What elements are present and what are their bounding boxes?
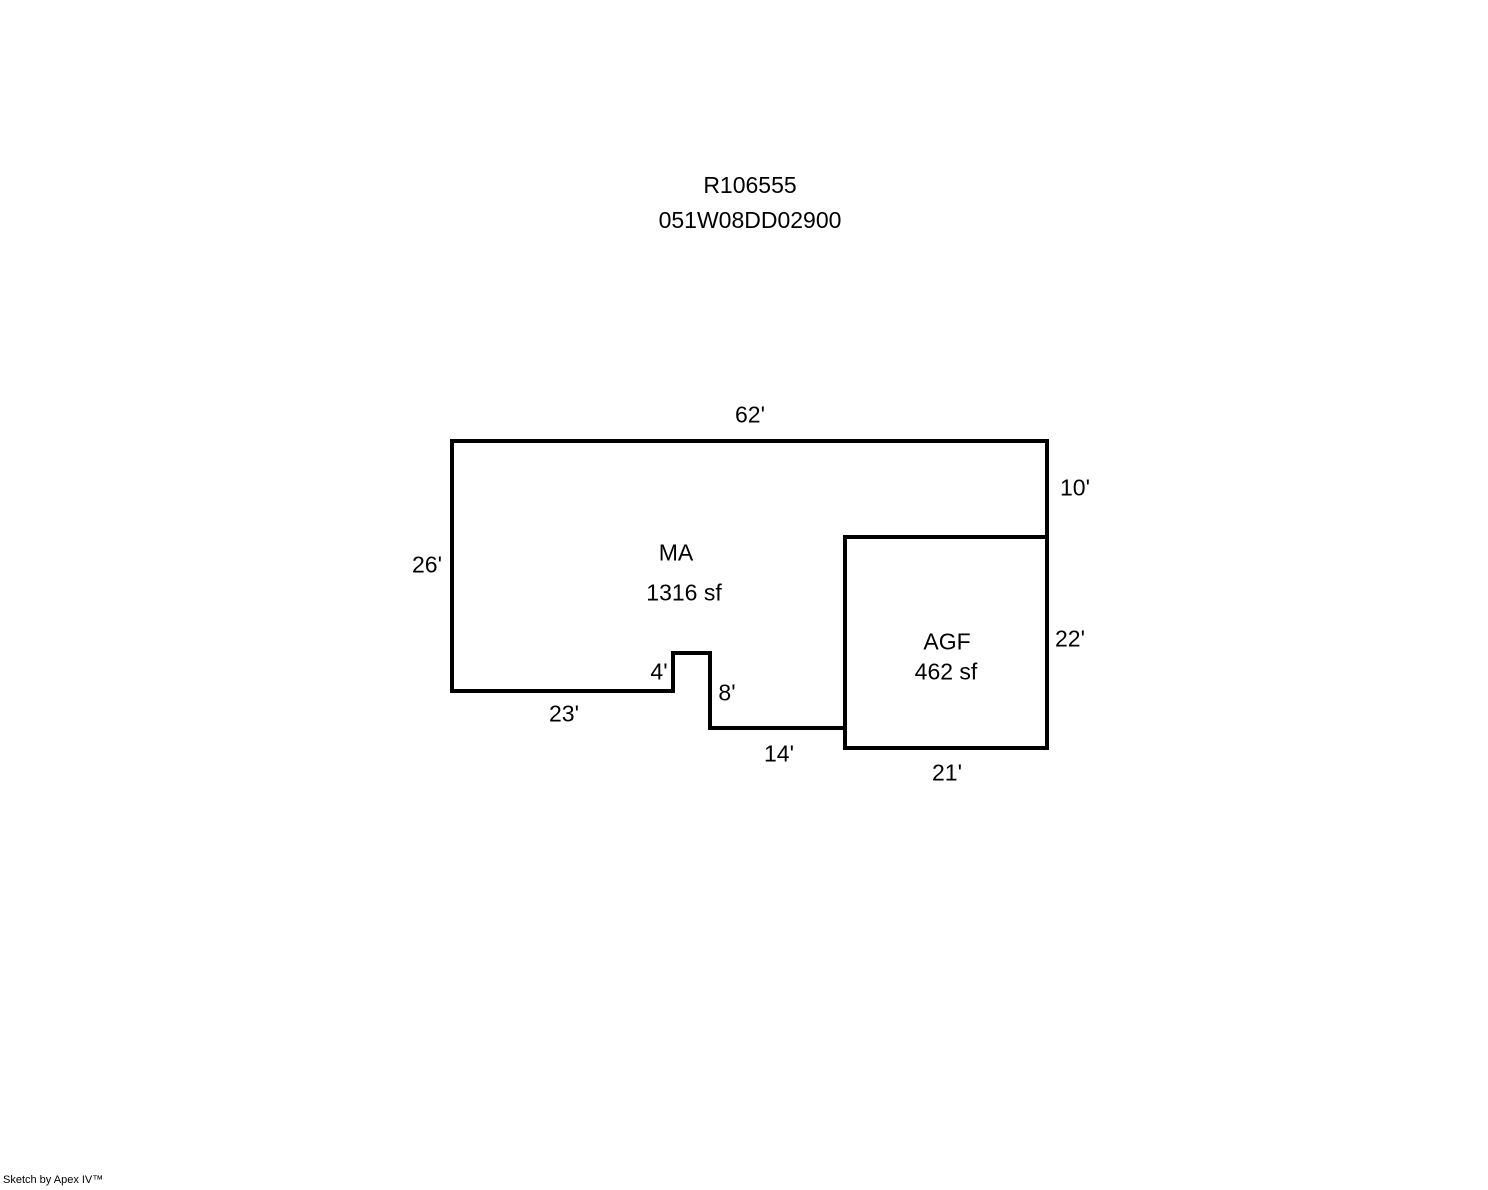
ma-outline — [452, 441, 1047, 728]
dim-bottom-23: 23' — [549, 703, 579, 726]
dim-agf-right-22: 22' — [1055, 628, 1085, 651]
ma-area-code: MA — [659, 542, 694, 565]
dim-agf-bottom-21: 21' — [932, 762, 962, 785]
dim-left-26: 26' — [412, 554, 442, 577]
dim-bottom-14: 14' — [764, 743, 794, 766]
dim-right-10: 10' — [1060, 477, 1090, 500]
dim-notch-8: 8' — [718, 682, 735, 705]
apex-credit: Sketch by Apex IV™ — [3, 1174, 103, 1187]
sketch-page: R106555 051W08DD02900 62' 10' 26' 4' 8' … — [0, 0, 1488, 1190]
agf-area-code: AGF — [923, 631, 970, 654]
dim-notch-4: 4' — [650, 661, 667, 684]
dim-top-62: 62' — [735, 404, 765, 427]
agf-area-sqft: 462 sf — [915, 661, 978, 684]
floorplan-drawing — [0, 0, 1488, 1190]
ma-area-sqft: 1316 sf — [646, 582, 721, 605]
